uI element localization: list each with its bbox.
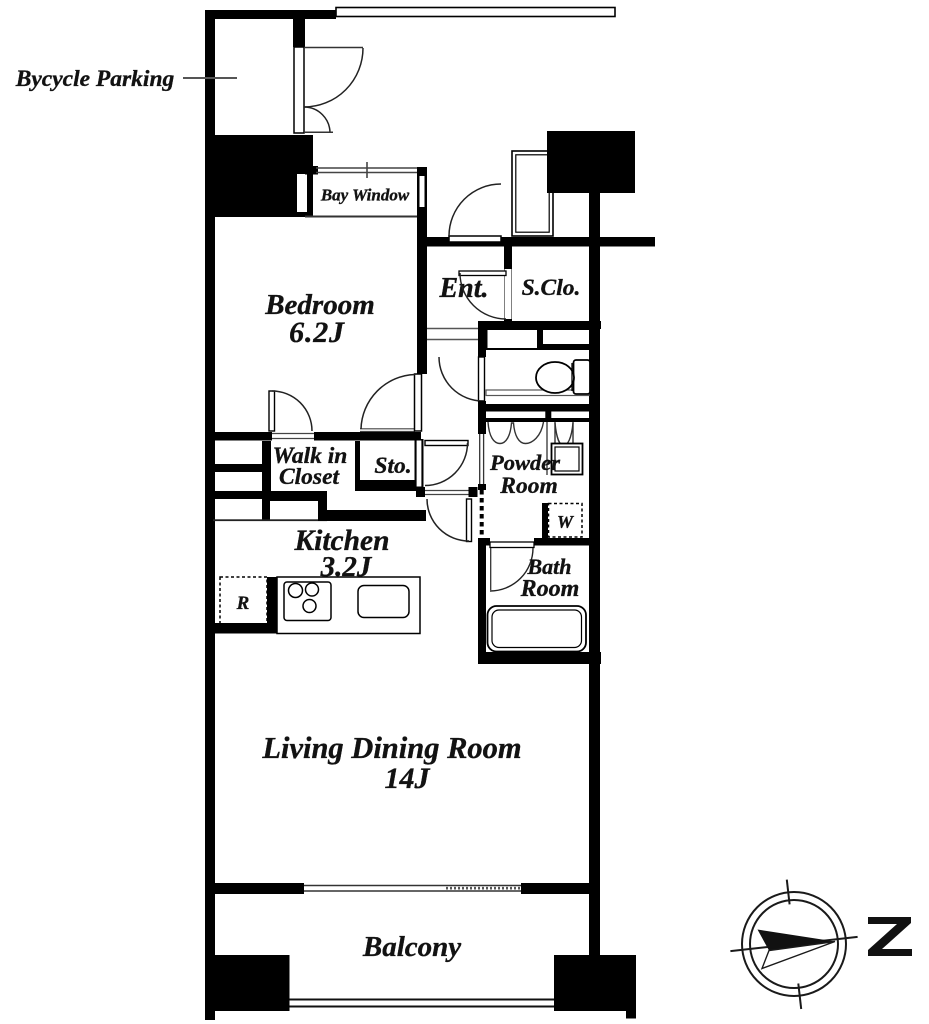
svg-text:Bycycle Parking: Bycycle Parking	[15, 66, 175, 92]
svg-text:W: W	[557, 512, 575, 532]
svg-text:14J: 14J	[385, 762, 431, 795]
svg-text:Room: Room	[520, 576, 580, 602]
svg-text:Room: Room	[499, 473, 557, 499]
svg-text:Closet: Closet	[279, 464, 341, 490]
svg-text:Sto.: Sto.	[374, 453, 411, 479]
svg-text:Balcony: Balcony	[362, 931, 461, 963]
svg-text:Bay Window: Bay Window	[320, 186, 410, 205]
svg-text:S.Clo.: S.Clo.	[522, 275, 581, 301]
svg-text:6.2J: 6.2J	[289, 316, 345, 349]
svg-text:Living Dining Room: Living Dining Room	[261, 731, 521, 765]
svg-text:Powder: Powder	[489, 450, 560, 475]
svg-text:R: R	[236, 593, 250, 614]
svg-text:Ent.: Ent.	[438, 273, 488, 304]
